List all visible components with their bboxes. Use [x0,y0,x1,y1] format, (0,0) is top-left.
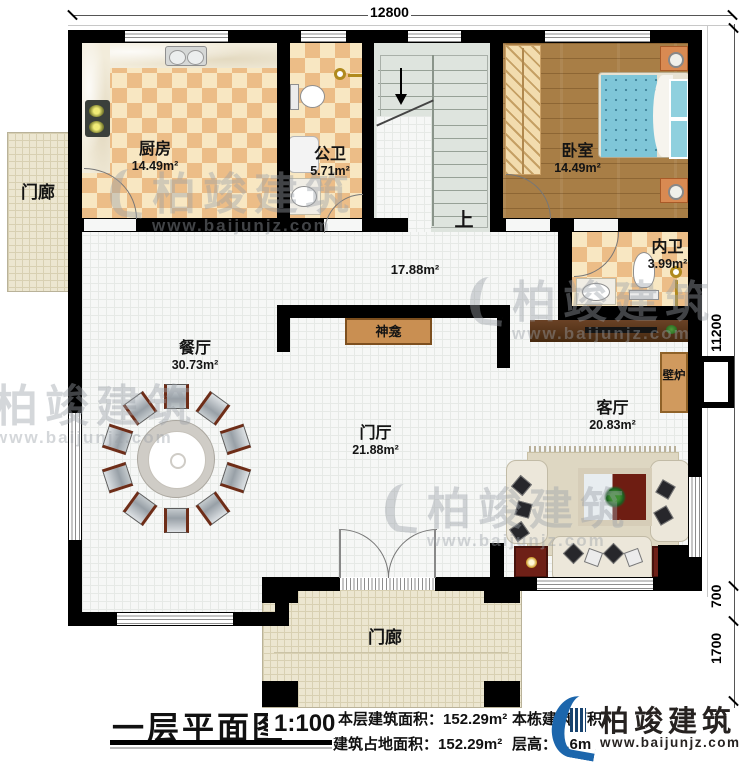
dim-label-right-mid: 700 [708,570,724,608]
fireplace-label: 壁炉 [662,370,686,383]
sink-bowl-left [169,50,186,65]
stairs-arrow-stem [400,68,402,94]
stat-value: 152.29m² [443,711,507,728]
watermark: 柏竣建筑 www.baijunjz.com [0,370,198,448]
rug-fringe [529,446,677,452]
sofa-right [650,460,690,542]
brand-url: www.baijunjz.com [600,735,741,750]
label-stairs-up: 上 [448,210,480,233]
window-stairs [408,31,461,42]
watermark-text: 柏竣建筑 [0,382,198,431]
label-dining: 餐厅 30.73m² [145,339,245,373]
watermark-url: www.baijunjz.com [427,531,631,551]
porch-pillar [262,577,298,603]
watermark-url: www.baijunjz.com [512,324,716,344]
lamp-icon [668,184,684,200]
dining-chair [164,508,189,533]
title-underline-thin [110,747,332,749]
watermark-text: 柏竣建筑 [427,485,631,534]
dim-label-right-low: 1700 [708,616,724,664]
porch-left-floor [7,132,70,292]
watermark: 柏竣建筑 www.baijunjz.com [470,266,716,344]
watermark: 柏竣建筑 www.baijunjz.com [385,473,631,551]
lamp-icon [526,557,537,568]
brand-logo: 柏竣建筑 www.baijunjz.com [548,690,750,762]
window-living-right [689,477,701,557]
nightstand [660,178,688,203]
stat-value: 152.29m² [438,736,502,753]
bedroom-door-opening [506,219,550,231]
brand-logo-building-icon [570,708,586,732]
label-ensuite-bath: 内卫 3.99m² [625,238,710,272]
stat-footprint-area: 建筑占地面积：152.29m² [333,733,502,754]
burner-icon [89,121,104,133]
towel-rod [348,74,362,77]
label-porch-bottom: 门廊 [350,628,420,648]
stat-floor-area: 本层建筑面积：152.29m² [338,708,507,729]
stairs-center-line [432,55,434,226]
kitchen-sink [165,46,207,66]
label-kitchen: 厨房 14.49m² [110,140,200,174]
label-bedroom: 卧室 14.49m² [530,142,625,176]
dim-label-right-main: 11200 [708,292,724,352]
shrine: 神龛 [345,318,432,345]
scale-label: 1:100 [268,710,335,738]
shrine-label: 神龛 [375,324,401,339]
burner-icon [89,105,104,117]
stairs-void [376,116,431,232]
window-kitchen [125,31,228,42]
label-living: 客厅 20.83m² [565,399,660,433]
sink-bowl-right [187,50,204,65]
bed-pillow [669,119,689,159]
chimney-niche [704,362,728,402]
watermark-url: www.baijunjz.com [0,428,198,448]
porch-step-line [274,652,508,653]
watermark-logo-icon [383,482,422,533]
watermark-logo-icon [468,275,507,326]
wardrobe-rod [522,48,524,174]
porch-pillar [484,681,520,707]
label-public-bath: 公卫 5.71m² [290,145,370,179]
dining-bay-floor [82,577,275,613]
kitchen-stove [85,100,110,137]
stairs-arrow-icon [395,94,407,105]
entrance-door-leaf [339,529,341,578]
dim-label-top: 12800 [368,4,411,20]
window-bedroom [545,31,650,42]
window-dining-bottom [117,613,233,625]
wall-stub-left [277,305,290,352]
porch-pillar [484,577,520,603]
watermark-text: 柏竣建筑 [512,278,716,327]
fireplace: 壁炉 [660,352,688,413]
nightstand [660,46,688,71]
floor-plan: 神龛 壁炉 [0,0,750,765]
toilet-tank [290,84,299,110]
wall-bath-stairs [362,43,374,232]
window-public-bath [301,31,346,42]
entrance-threshold [340,578,435,590]
watermark-logo-icon [108,167,147,218]
dining-table-center [170,453,186,469]
bed-pillow [669,79,689,119]
dim-line-right [734,24,735,708]
wall-stairs-south [374,218,408,232]
label-foyer: 门厅 21.88m² [328,424,423,458]
stat-label: 建筑占地面积： [333,736,438,753]
stat-label: 本层建筑面积： [338,711,443,728]
title-underline [110,740,332,745]
towel-ring-icon [334,68,346,80]
toilet-bowl [300,85,325,108]
label-hallway-area: 17.88m² [375,262,455,278]
ensuite-door-opening [574,219,618,231]
eave-line-top [68,25,735,26]
window-living-bottom [537,578,653,590]
lamp-icon [668,52,684,68]
wall-stairs-bedroom [490,43,503,218]
porch-bottom-floor [262,589,522,708]
label-porch-left: 门廊 [12,183,64,203]
brand-name: 柏竣建筑 [600,698,736,740]
watermark-url: www.baijunjz.com [152,216,356,236]
